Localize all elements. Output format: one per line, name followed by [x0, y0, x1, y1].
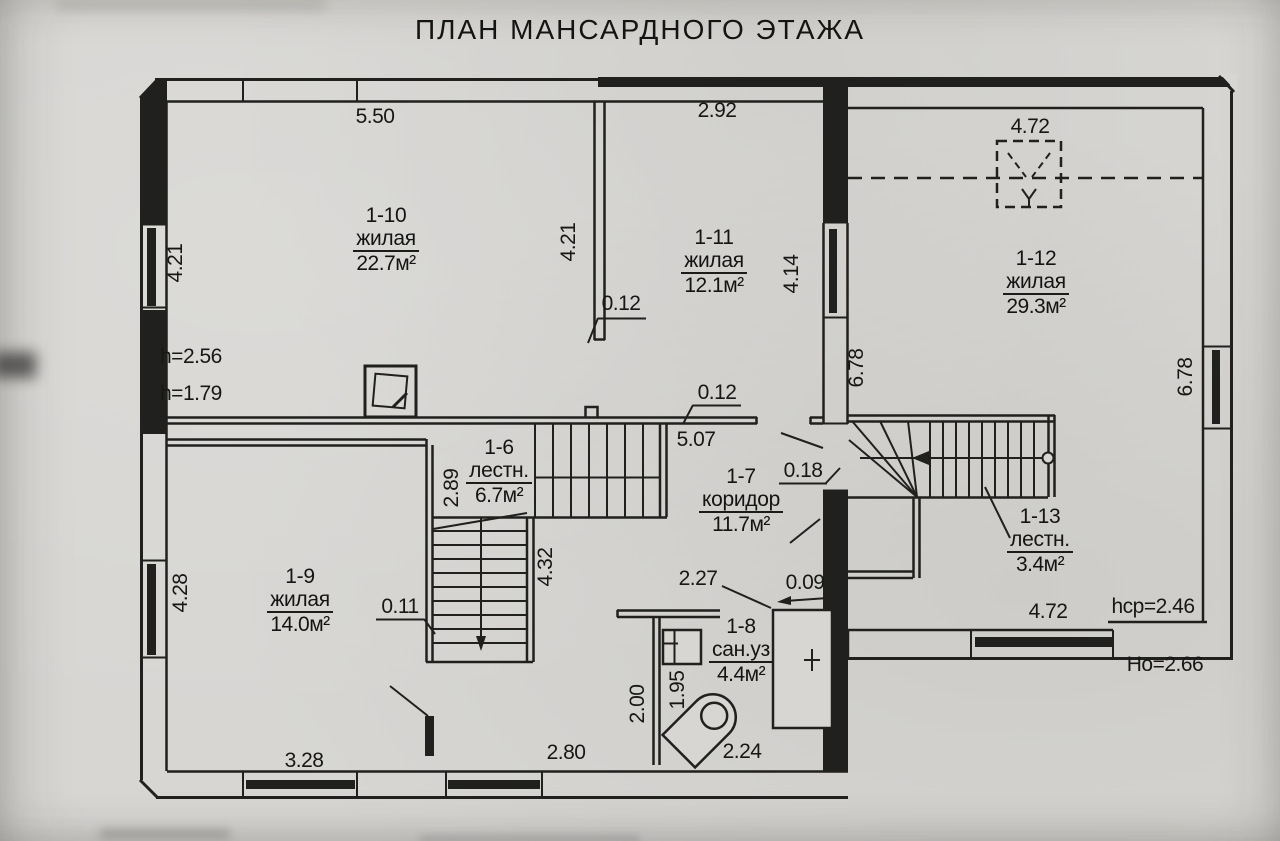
dim-0-12-partition: 0.12: [589, 292, 653, 316]
dim-left-4-21: 4.21: [164, 231, 188, 295]
dim-4-28: 4.28: [169, 561, 193, 625]
dim-0-11: 0.11: [368, 595, 432, 619]
room-area: 14.0м²: [240, 613, 360, 636]
dim-4-14: 4.14: [780, 242, 804, 306]
dim-3-28: 3.28: [272, 749, 336, 773]
dim-2-00: 2.00: [626, 672, 650, 736]
chimney-shaft-icon: [997, 141, 1061, 207]
room-area: 29.3м²: [976, 295, 1096, 318]
room-label-1-8: 1-8 сан.уз 4.4м²: [681, 615, 801, 686]
room-label-1-11: 1-11 жилая 12.1м²: [654, 226, 774, 297]
dim-top-5-50: 5.50: [343, 105, 407, 129]
dim-6-78-left: 6.78: [845, 336, 869, 400]
room-area: 4.4м²: [681, 663, 801, 686]
dim-5-07: 5.07: [664, 428, 728, 452]
dim-4-32: 4.32: [534, 535, 558, 599]
room-area: 3.4м²: [980, 553, 1100, 576]
dim-2-89: 2.89: [440, 456, 464, 520]
room-number: 1-13: [980, 505, 1100, 528]
room-label-1-12: 1-12 жилая 29.3м²: [976, 247, 1096, 318]
room-type: жилая: [267, 588, 333, 613]
room-label-1-13: 1-13 лестн. 3.4м²: [980, 505, 1100, 576]
dim-top-2-92: 2.92: [685, 99, 749, 123]
dim-2-24: 2.24: [710, 740, 774, 764]
dim-6-78-right: 6.78: [1174, 345, 1198, 409]
room-number: 1-12: [976, 247, 1096, 270]
height-lower-label: h=1.79: [160, 382, 270, 406]
room-label-1-10: 1-10 жилая 22.7м²: [326, 204, 446, 275]
room-number: 1-10: [326, 204, 446, 227]
room-type: жилая: [681, 249, 747, 274]
dim-2-80: 2.80: [534, 741, 598, 765]
scanned-floor-plan-page: ПЛАН МАНСАРДНОГО ЭТАЖА: [0, 0, 1280, 841]
dim-1-95: 1.95: [666, 658, 690, 722]
room-type: жилая: [353, 227, 419, 252]
room-label-1-9: 1-9 жилая 14.0м²: [240, 565, 360, 636]
dim-0-12-wall: 0.12: [685, 381, 749, 405]
room-type: сан.уз: [709, 638, 773, 663]
dim-partition-4-21: 4.21: [557, 210, 581, 274]
dim-2-27: 2.27: [666, 567, 730, 591]
height-avg-label: hср=2.46: [1098, 595, 1208, 619]
room-area: 11.7м²: [681, 513, 801, 536]
stairs-1-13: [848, 415, 1055, 498]
room-type: коридор: [699, 488, 783, 513]
room-type: лестн.: [466, 459, 532, 484]
room-type: лестн.: [1007, 528, 1073, 553]
room-number: 1-11: [654, 226, 774, 249]
dim-top-4-72: 4.72: [998, 115, 1062, 139]
dim-0-18: 0.18: [771, 459, 835, 483]
room-type: жилая: [1003, 270, 1069, 295]
height-o-label: Но=2.66: [1110, 653, 1220, 677]
room-area: 22.7м²: [326, 252, 446, 275]
flue-icon: [365, 366, 416, 417]
dim-0-09: 0.09: [773, 571, 837, 595]
room-number: 1-8: [681, 615, 801, 638]
dim-bottom-4-72: 4.72: [1016, 600, 1080, 624]
room-number: 1-9: [240, 565, 360, 588]
room-area: 12.1м²: [654, 274, 774, 297]
height-upper-label: h=2.56: [160, 345, 270, 369]
